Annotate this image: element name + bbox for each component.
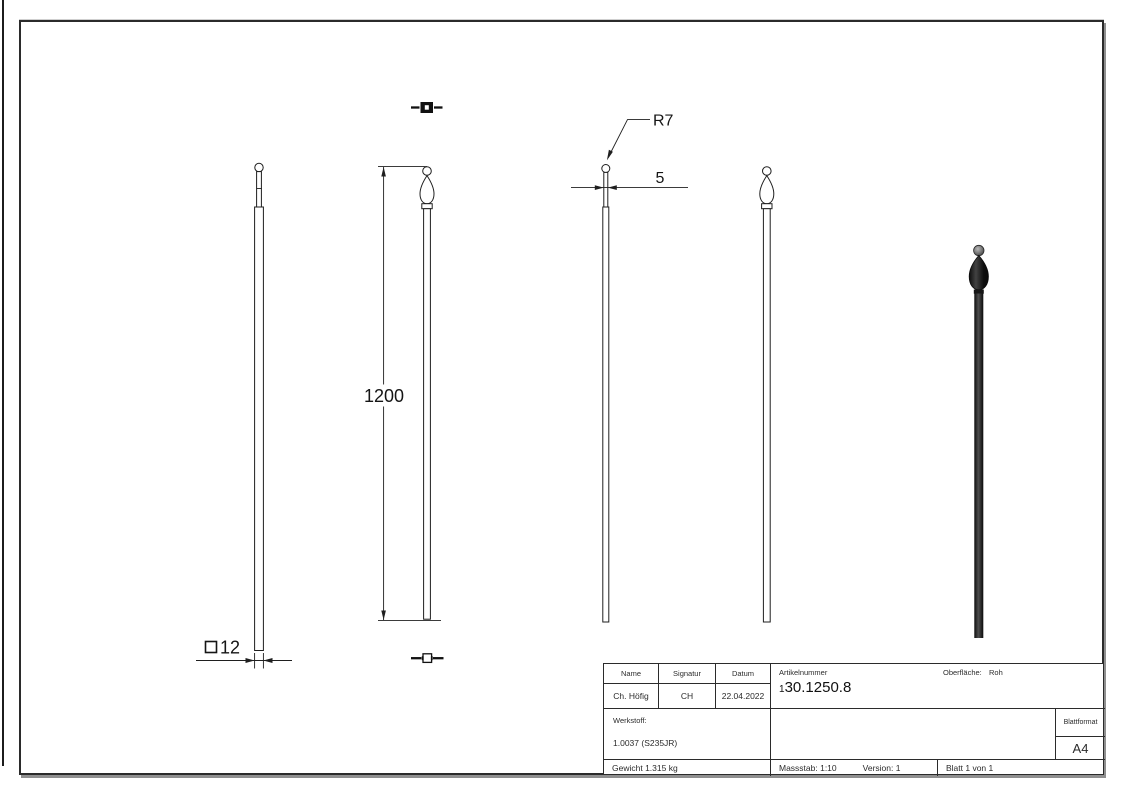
edge-nub: [422, 656, 424, 660]
werkstoff-label: Werkstoff:: [613, 716, 646, 725]
teardrop-finial-3d: [969, 256, 988, 290]
artikelnummer-value: 130.1250.8: [779, 679, 851, 696]
dimension-text-profile: 12: [220, 638, 240, 658]
tb-header-datum: Datum: [716, 664, 771, 684]
tb-header-signatur: Signatur: [659, 664, 716, 684]
view-front-dimensioned: [420, 167, 434, 620]
collar: [762, 204, 772, 209]
tb-empty-cell: [771, 709, 1056, 760]
dimension-text-length: 1200: [364, 386, 404, 406]
arrowhead: [246, 658, 255, 663]
tb-blattformat-value-cell: A4: [1056, 737, 1105, 760]
arrowhead: [608, 185, 617, 190]
leader-line: [608, 120, 650, 158]
werkstoff-value: 1.0037 (S235JR): [613, 738, 677, 748]
tb-blatt-cell: Blatt 1 von 1: [938, 760, 1105, 776]
tip-neck: [257, 172, 262, 207]
square-symbol: [206, 642, 217, 653]
tb-name-value: Ch. Höfig: [604, 684, 659, 709]
top-view-center: [425, 105, 429, 110]
title-block: Name Signatur Datum Ch. Höfig CH 22.04.2…: [603, 663, 1104, 775]
view-bottom-projection: [411, 654, 444, 663]
tb-signatur-value: CH: [659, 684, 716, 709]
oberflaeche: Oberfläche: Roh: [943, 668, 1003, 677]
square-bar-body: [255, 207, 264, 651]
view-top-projection: [411, 102, 443, 113]
arrowhead: [381, 167, 386, 177]
collar-3d: [974, 290, 984, 294]
tb-werkstoff-cell: Werkstoff: 1.0037 (S235JR): [604, 709, 771, 760]
arrowhead: [607, 150, 613, 161]
teardrop-finial-outline: [420, 176, 434, 204]
view-side-left: [255, 163, 264, 650]
tb-header-name: Name: [604, 664, 659, 684]
tb-datum-value: 22.04.2022: [716, 684, 771, 709]
view-side-detail: [602, 165, 610, 623]
ball-tip-outline: [423, 167, 432, 176]
arrowhead: [263, 658, 272, 663]
tip-neck: [604, 172, 608, 207]
tb-gewicht-cell: Gewicht 1.315 kg: [604, 760, 771, 776]
version: Version: 1: [863, 763, 901, 773]
square-bar-body: [763, 209, 770, 622]
ball-tip-3d: [974, 245, 984, 255]
bottom-view-square: [423, 654, 432, 663]
ball-tip-outline: [602, 165, 610, 173]
collar: [422, 204, 432, 209]
drawing-sheet: 12 1200: [0, 0, 1123, 794]
view-front-right: [760, 167, 774, 622]
tb-artikelnummer-cell: Artikelnummer Oberfläche: Roh 130.1250.8: [771, 664, 1105, 709]
view-3d-render: [969, 245, 988, 638]
dimension-thickness-5: 5: [571, 170, 688, 190]
radius-callout-r7: R7: [607, 113, 674, 161]
ball-tip-outline: [763, 167, 772, 176]
tb-massstab-cell: Massstab: 1:10 Version: 1: [771, 760, 938, 776]
teardrop-finial-outline: [760, 176, 774, 204]
dimension-profile-12: 12: [196, 638, 292, 669]
dimension-text-radius: R7: [653, 113, 674, 130]
tb-blattformat-label-cell: Blattformat: [1056, 709, 1105, 737]
arrowhead: [595, 185, 604, 190]
edge-nub: [431, 656, 433, 660]
dimension-text-thickness: 5: [656, 170, 665, 187]
artikelnummer-label: Artikelnummer: [779, 668, 827, 677]
square-bar-body: [603, 207, 609, 622]
square-bar-3d: [974, 294, 983, 639]
ball-tip-outline: [255, 163, 263, 171]
square-bar-body: [424, 209, 431, 620]
arrowhead: [381, 611, 386, 621]
